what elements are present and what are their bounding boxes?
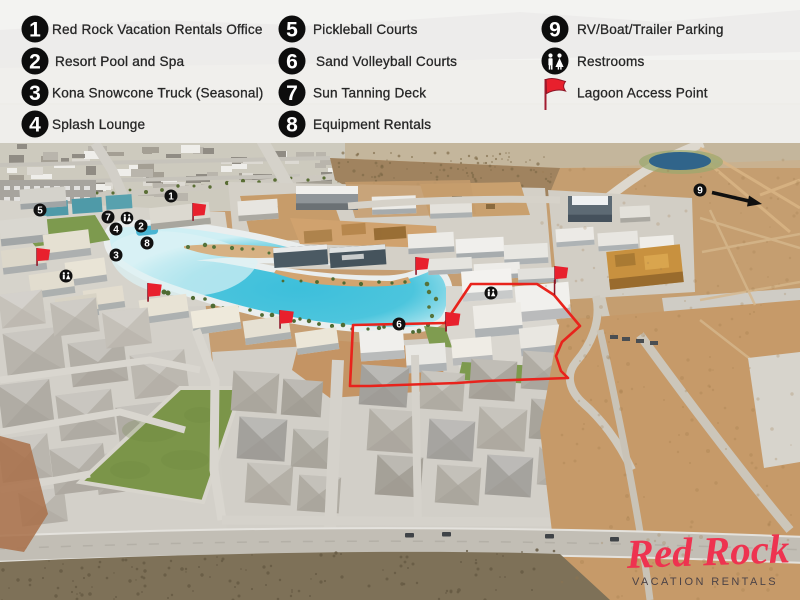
svg-text:5: 5 bbox=[286, 19, 298, 42]
svg-text:7: 7 bbox=[105, 213, 111, 224]
svg-text:6: 6 bbox=[396, 320, 402, 331]
svg-text:Red Rock Vacation Rentals Offi: Red Rock Vacation Rentals Office bbox=[52, 22, 263, 37]
svg-text:Pickleball Courts: Pickleball Courts bbox=[313, 22, 418, 37]
svg-text:2: 2 bbox=[29, 51, 41, 74]
svg-text:Sand Volleyball Courts: Sand Volleyball Courts bbox=[316, 54, 457, 69]
svg-text:1: 1 bbox=[168, 192, 174, 203]
svg-text:8: 8 bbox=[144, 239, 150, 250]
svg-text:Equipment Rentals: Equipment Rentals bbox=[313, 117, 431, 132]
svg-text:Sun Tanning Deck: Sun Tanning Deck bbox=[313, 86, 426, 101]
svg-text:5: 5 bbox=[37, 206, 43, 217]
svg-text:8: 8 bbox=[286, 114, 298, 137]
svg-text:7: 7 bbox=[286, 82, 298, 105]
svg-text:4: 4 bbox=[113, 225, 119, 236]
svg-text:Splash Lounge: Splash Lounge bbox=[52, 117, 145, 132]
svg-text:RV/Boat/Trailer Parking: RV/Boat/Trailer Parking bbox=[577, 22, 724, 37]
svg-text:Lagoon Access Point: Lagoon Access Point bbox=[577, 86, 708, 101]
svg-text:Red Rock: Red Rock bbox=[625, 525, 791, 577]
svg-text:Resort Pool and Spa: Resort Pool and Spa bbox=[55, 54, 184, 69]
svg-text:Restrooms: Restrooms bbox=[577, 54, 645, 69]
svg-text:4: 4 bbox=[29, 114, 41, 137]
svg-text:9: 9 bbox=[549, 19, 561, 42]
svg-text:1: 1 bbox=[29, 19, 41, 42]
svg-text:VACATION RENTALS: VACATION RENTALS bbox=[632, 576, 778, 588]
svg-text:3: 3 bbox=[29, 82, 41, 105]
svg-text:6: 6 bbox=[286, 51, 298, 74]
svg-text:3: 3 bbox=[113, 251, 119, 262]
svg-text:9: 9 bbox=[697, 186, 703, 197]
svg-text:Kona Snowcone Truck (Seasonal): Kona Snowcone Truck (Seasonal) bbox=[52, 86, 264, 101]
svg-text:2: 2 bbox=[138, 222, 144, 233]
